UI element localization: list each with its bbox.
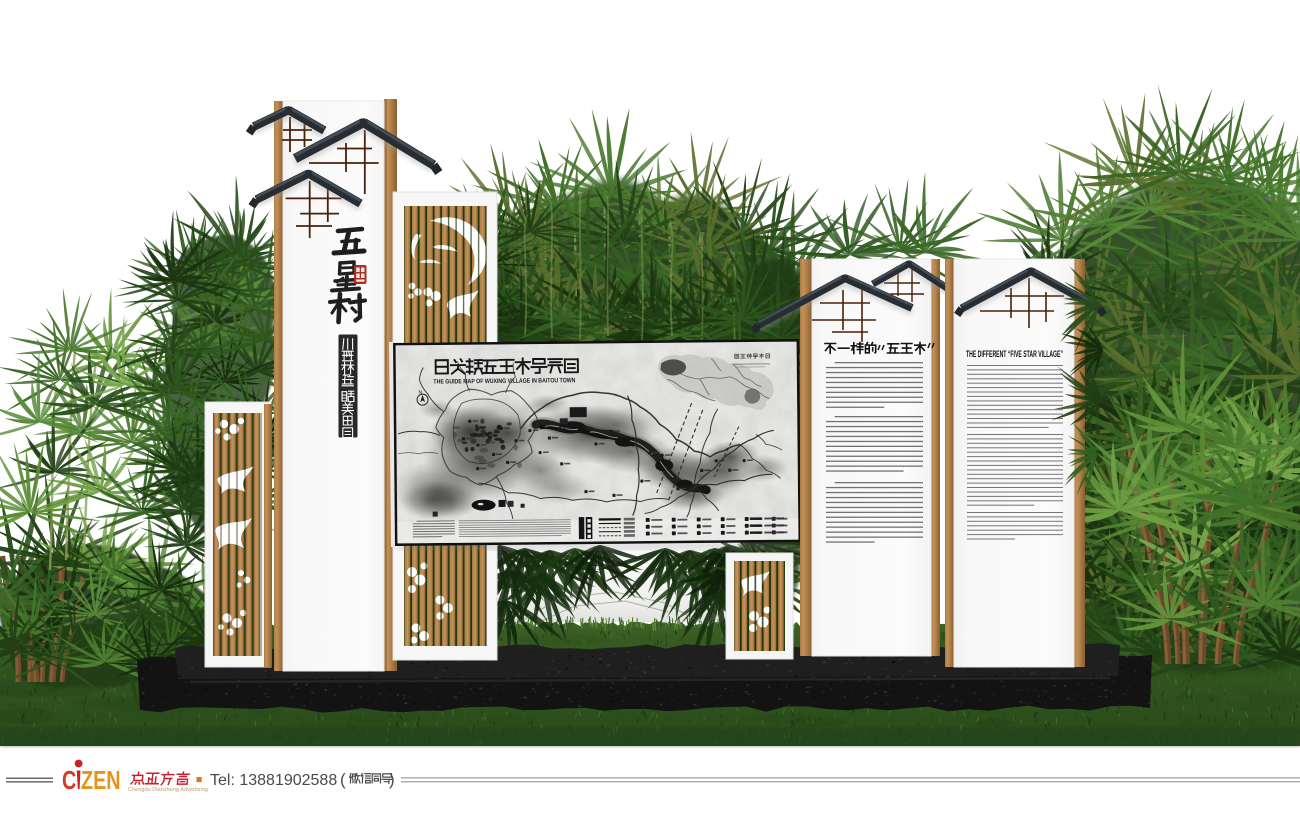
svg-text:THE GUIDE MAP OF WUXING VILLAG: THE GUIDE MAP OF WUXING VILLAGE IN BAITO… (433, 377, 575, 385)
svg-text:(: ( (340, 770, 346, 789)
svg-text:): ) (389, 770, 395, 789)
svg-text:N: N (418, 390, 422, 396)
svg-text:C: C (62, 765, 77, 794)
svg-text:Tel: 13881902588: Tel: 13881902588 (210, 772, 337, 789)
svg-text:ZEN: ZEN (81, 765, 121, 794)
svg-text:Chengdu Dianzheng Advertising: Chengdu Dianzheng Advertising (128, 787, 208, 793)
svg-text:THE DIFFERENT “FIVE STAR VILLA: THE DIFFERENT “FIVE STAR VILLAGE” (966, 349, 1063, 359)
